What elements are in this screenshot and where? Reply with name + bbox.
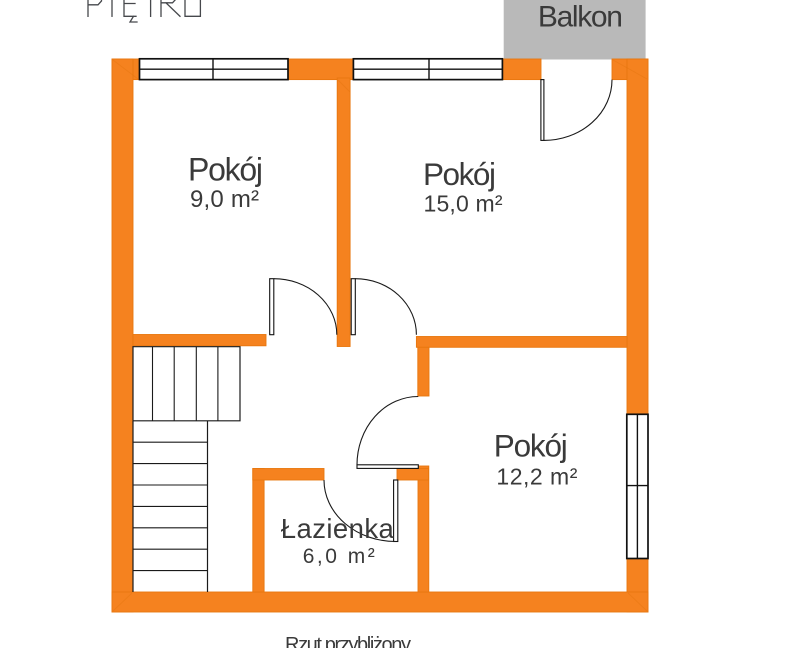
svg-text:Balkon: Balkon (538, 1, 623, 34)
svg-text:Łazienka: Łazienka (281, 513, 395, 544)
svg-text:Pokój: Pokój (423, 156, 496, 192)
svg-text:12,2 m²: 12,2 m² (496, 463, 577, 489)
svg-text:Pokój: Pokój (494, 427, 568, 463)
svg-text:9,0 m²: 9,0 m² (190, 186, 259, 213)
svg-text:Rzut przybliżony: Rzut przybliżony (285, 634, 411, 648)
svg-text:Pokój: Pokój (188, 152, 263, 188)
svg-text:15,0 m²: 15,0 m² (424, 191, 503, 217)
svg-text:6,0 m²: 6,0 m² (303, 545, 375, 568)
